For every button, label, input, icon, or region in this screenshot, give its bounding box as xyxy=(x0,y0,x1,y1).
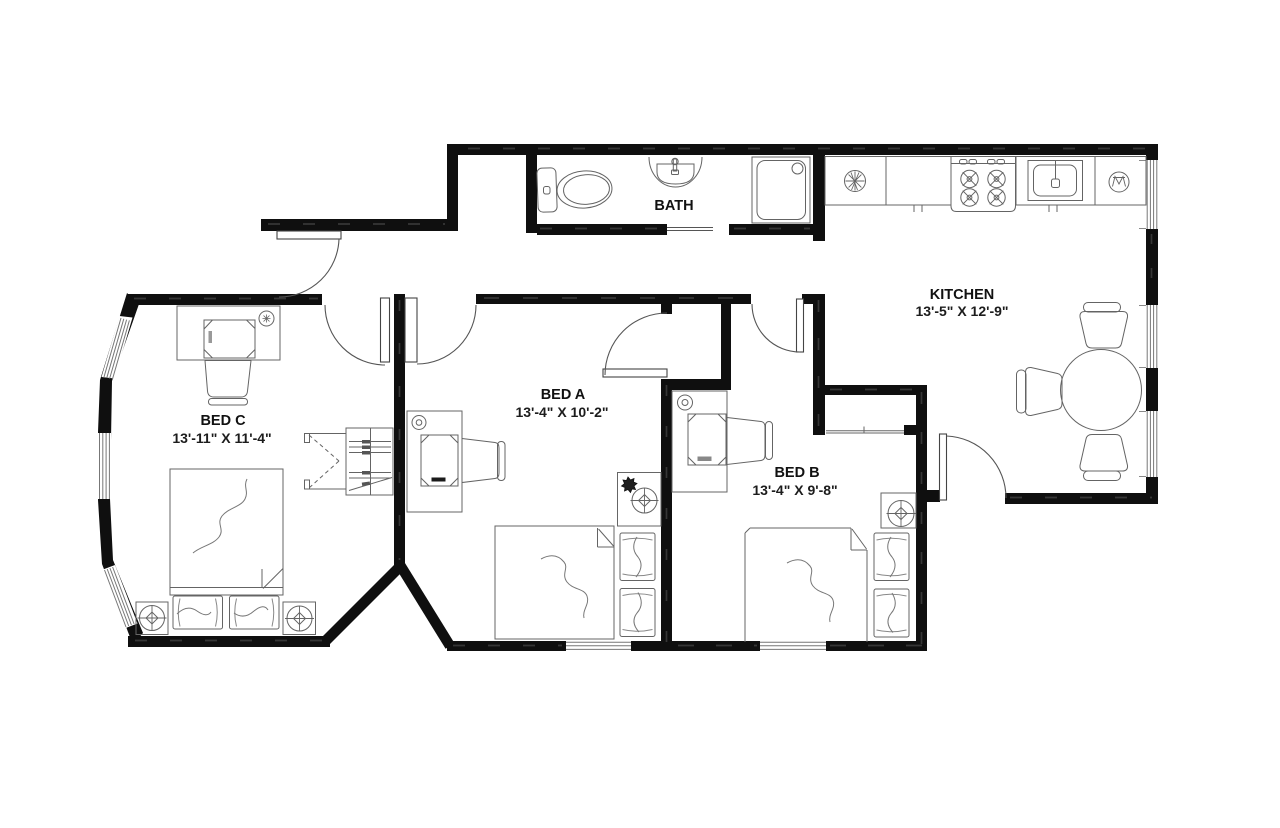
svg-text:BED C: BED C xyxy=(200,413,246,429)
svg-text:13'-5" X 12'-9": 13'-5" X 12'-9" xyxy=(915,303,1008,319)
svg-text:13'-4" X 10'-2": 13'-4" X 10'-2" xyxy=(515,404,608,420)
svg-text:BED B: BED B xyxy=(774,465,819,481)
svg-text:13'-4" X 9'-8": 13'-4" X 9'-8" xyxy=(752,482,837,498)
svg-text:BATH: BATH xyxy=(654,198,693,214)
svg-text:13'-11" X 11'-4": 13'-11" X 11'-4" xyxy=(172,430,271,446)
svg-text:KITCHEN: KITCHEN xyxy=(930,287,994,303)
svg-text:BED A: BED A xyxy=(541,387,586,403)
